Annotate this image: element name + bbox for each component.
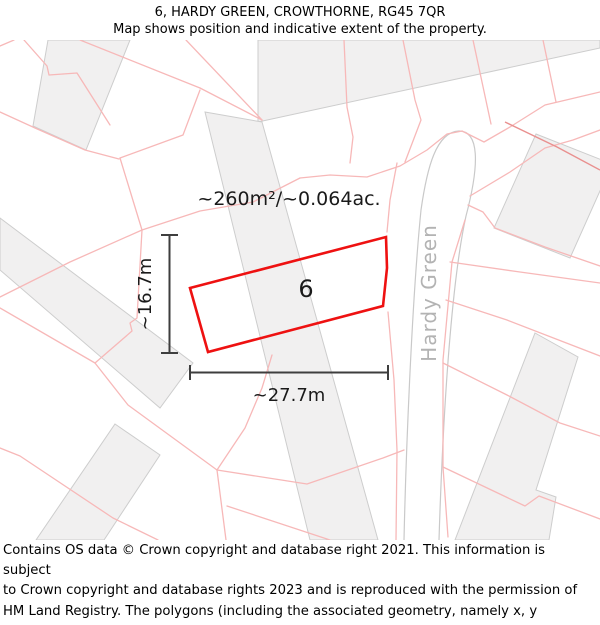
property-map-page: 6, HARDY GREEN, CROWTHORNE, RG45 7QR Map… <box>0 0 600 625</box>
parcel-line <box>186 40 262 120</box>
title-block: 6, HARDY GREEN, CROWTHORNE, RG45 7QR Map… <box>0 4 600 38</box>
copyright-line: Contains OS data © Crown copyright and d… <box>3 541 595 581</box>
plot-number-label: 6 <box>298 275 313 303</box>
building-shape <box>455 333 578 540</box>
area-label: ~260m²/~0.064ac. <box>197 188 380 210</box>
building-shape <box>36 424 160 540</box>
map-container: ~260m²/~0.064ac. 6 ~16.7m ~27.7m Hardy G… <box>0 40 600 540</box>
parcel-line <box>450 262 600 283</box>
copyright-line: to Crown copyright and database rights 2… <box>3 581 595 601</box>
parcel-line <box>120 90 200 158</box>
width-dimension-label: ~27.7m <box>253 385 326 406</box>
height-dimension-label: ~16.7m <box>135 258 156 331</box>
parcel-line <box>0 40 14 46</box>
height-dimension <box>161 235 178 353</box>
page-subtitle: Map shows position and indicative extent… <box>0 21 600 38</box>
copyright-text: Contains OS data © Crown copyright and d… <box>3 541 595 625</box>
street-name-label: Hardy Green <box>417 224 441 362</box>
map-canvas: ~260m²/~0.064ac. 6 ~16.7m ~27.7m Hardy G… <box>0 40 600 540</box>
building-shape <box>258 40 600 122</box>
building-shape <box>494 134 600 258</box>
parcel-line <box>387 163 397 232</box>
building-shape <box>0 218 193 408</box>
parcel-line <box>388 312 397 540</box>
parcel-line <box>217 470 226 540</box>
page-title: 6, HARDY GREEN, CROWTHORNE, RG45 7QR <box>0 4 600 21</box>
copyright-line: HM Land Registry. The polygons (includin… <box>3 602 595 622</box>
parcel-line <box>446 300 600 356</box>
parcel-line <box>120 158 142 230</box>
